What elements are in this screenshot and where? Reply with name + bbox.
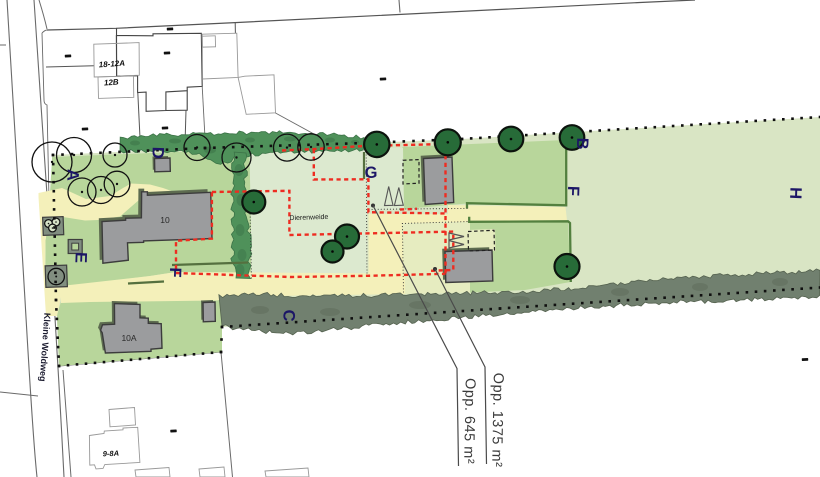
svg-text:12B: 12B [104, 77, 119, 87]
svg-text:10: 10 [160, 215, 170, 225]
svg-text:F: F [564, 186, 582, 197]
svg-text:Opp. 1375 m²: Opp. 1375 m² [488, 373, 506, 468]
svg-text:H: H [786, 187, 804, 200]
svg-text:Opp. 645 m²: Opp. 645 m² [460, 378, 478, 464]
svg-text:Dierenweide: Dierenweide [289, 214, 328, 222]
svg-text:18-12A: 18-12A [98, 59, 125, 70]
svg-text:B: B [573, 137, 591, 150]
svg-text:9-8A: 9-8A [103, 449, 120, 459]
svg-text:G: G [365, 164, 378, 182]
svg-text:10A: 10A [121, 333, 136, 343]
svg-text:A: A [63, 169, 81, 182]
svg-text:D: D [148, 147, 166, 160]
svg-text:F: F [166, 267, 184, 278]
svg-text:C: C [279, 309, 297, 322]
svg-text:E: E [71, 252, 89, 264]
